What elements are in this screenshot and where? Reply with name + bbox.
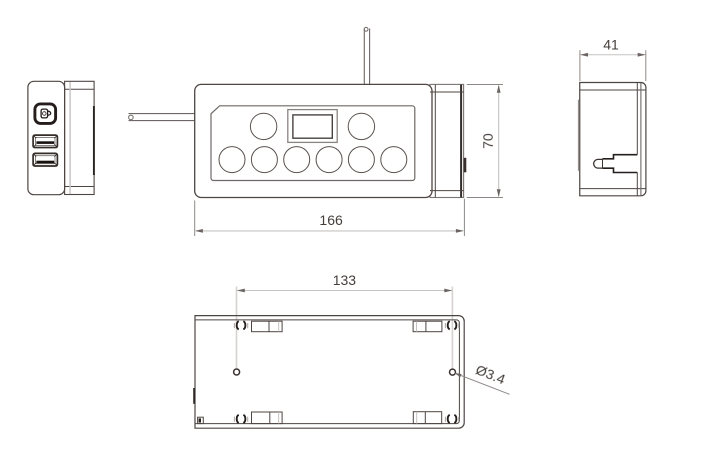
svg-text:133: 133: [333, 272, 357, 288]
svg-text:166: 166: [319, 212, 343, 228]
svg-text:Ø3.4: Ø3.4: [474, 361, 508, 387]
svg-text:70: 70: [480, 133, 496, 149]
svg-text:41: 41: [603, 37, 619, 53]
